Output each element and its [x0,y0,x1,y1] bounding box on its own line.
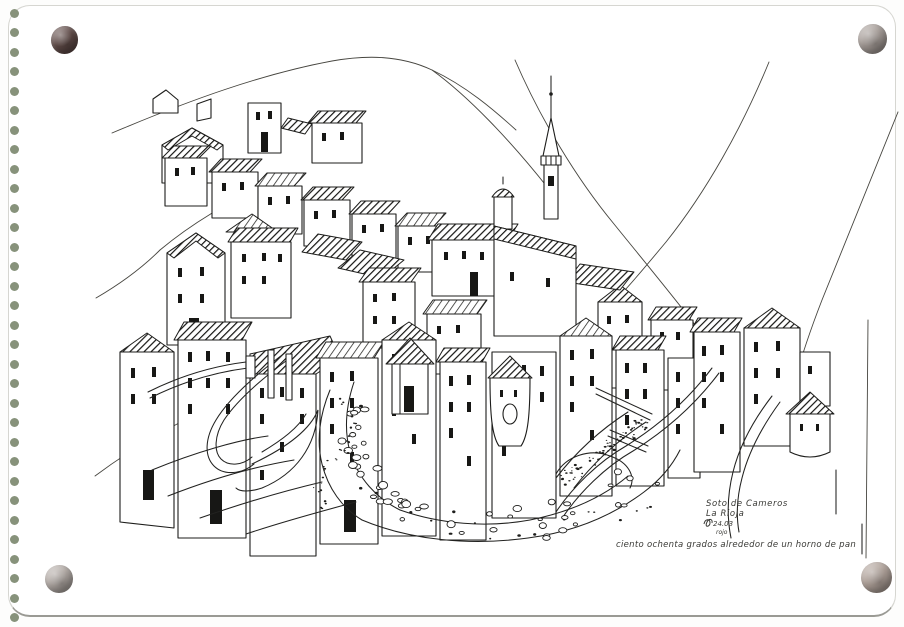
artist-monogram [704,519,712,526]
scanned-page-stage: .b{fill:#ffffff;stroke:#1d1d1b;stroke-wi… [0,0,904,627]
pebble-magnet-bottom-left [45,565,73,593]
right-cluster-houses [690,308,834,472]
church-with-spire [492,76,576,336]
signature-date: 24.03 [713,520,733,528]
place-name-line1: Soto de Cameros [706,499,788,509]
handwritten-annotations: Soto de Cameros La Rioja 24.03 rojo cien… [616,499,856,550]
caption-text: ciento ochenta grados alrededor de un ho… [616,540,856,550]
place-name-line2: La Rioja [706,509,745,519]
pebble-magnet-bottom-right [861,562,892,593]
pebble-magnet-top-left [51,26,78,54]
village-sketch: .b{fill:#ffffff;stroke:#1d1d1b;stroke-wi… [0,0,904,627]
pebble-magnet-top-right [858,24,887,54]
signature-note: rojo [716,529,728,536]
